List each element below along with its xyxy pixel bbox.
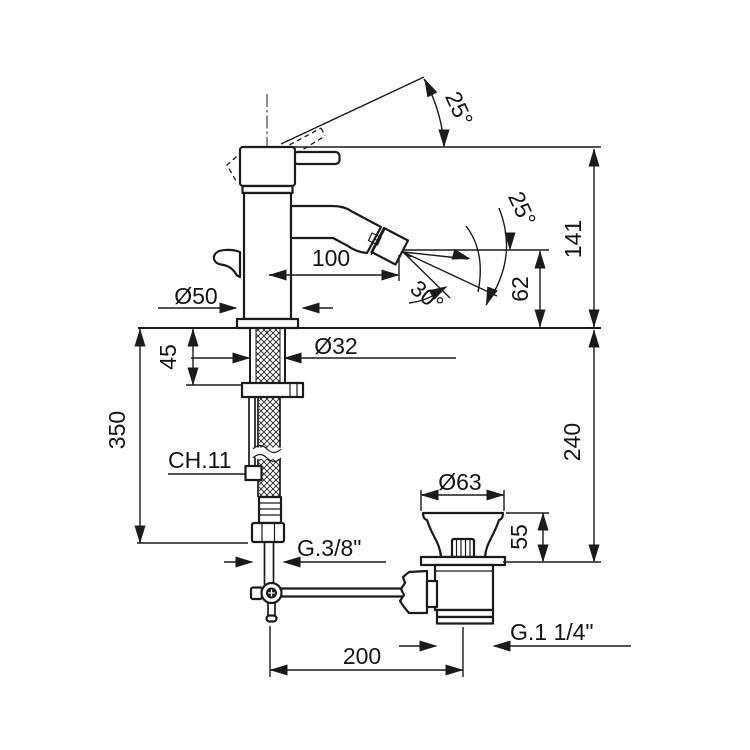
dim-handle-angle: 25° — [281, 77, 478, 146]
dim-label-spout-height: 62 — [507, 276, 533, 302]
dim-label-waste-cap-diameter: Ø63 — [438, 469, 481, 495]
dim-label-shank-depth: 45 — [155, 344, 181, 370]
base-flange — [237, 319, 298, 328]
rod-tip — [267, 616, 277, 622]
shank-thread-hatch — [256, 329, 280, 383]
dim-top-height: 141 — [560, 149, 594, 327]
popup-knob — [214, 250, 240, 277]
dim-shank-diameter: Ø32 — [191, 333, 456, 359]
dim-label-spout-reach: 100 — [312, 245, 350, 271]
dim-label-waste-thread: G.1 1/4" — [510, 619, 594, 645]
dim-label-below-deck-depth: 240 — [559, 423, 585, 461]
dim-label-spray-angle-large: 25° — [503, 187, 541, 230]
dim-label-base-diameter: Ø50 — [174, 283, 217, 309]
dim-supply-thread: G.3/8" — [224, 535, 386, 562]
dim-rod-to-waste: 200 — [270, 626, 463, 677]
dim-waste-height: 55 — [506, 513, 549, 561]
mounting-washer — [242, 383, 303, 397]
handle-lever — [294, 152, 340, 164]
dim-label-supply-thread: G.3/8" — [297, 535, 361, 561]
popup-waste-assembly — [400, 513, 505, 624]
technical-drawing-canvas: 25° 25° 30° 100 Ø50 Ø32 — [0, 0, 750, 750]
waste-knob — [452, 539, 474, 557]
hose-hex-nut — [252, 523, 284, 542]
dim-waste-cap-diameter: Ø63 — [421, 469, 504, 511]
dim-label-rod-to-waste: 200 — [343, 643, 381, 669]
dim-label-handle-angle: 25° — [440, 87, 478, 130]
dim-wrench-size: CH.11 — [168, 447, 245, 474]
dim-spout-height: 62 — [507, 251, 540, 327]
waste-rod-socket — [427, 581, 437, 607]
rod-stub — [251, 588, 262, 600]
horizontal-rod — [281, 589, 407, 597]
hose-end-thread — [259, 497, 281, 523]
faucet-body — [214, 147, 408, 328]
hose-hatch-upper — [259, 397, 280, 448]
waste-tail-band-2 — [437, 617, 493, 624]
supply-tube — [265, 542, 274, 585]
dim-waste-thread: G.1 1/4" — [399, 619, 631, 646]
dim-label-hose-length: 350 — [104, 411, 130, 449]
waste-knurled-nut — [400, 571, 427, 613]
dim-label-wrench-size: CH.11 — [168, 447, 232, 473]
body-cylinder — [244, 193, 291, 319]
dim-label-shank-diameter: Ø32 — [314, 333, 357, 359]
dim-label-spray-angle-small: 30° — [405, 275, 448, 317]
waste-flange — [421, 557, 505, 565]
dim-label-waste-height: 55 — [506, 524, 532, 550]
handle-block — [240, 147, 295, 186]
bidet-mixer-drawing: 25° 25° 30° 100 Ø50 Ø32 — [0, 0, 750, 750]
waste-body — [435, 565, 493, 610]
below-deck-assembly — [242, 328, 407, 622]
dim-label-top-height: 141 — [560, 220, 586, 258]
dim-shank-depth: 45 — [155, 329, 241, 385]
rod-wrench-flat — [246, 466, 262, 480]
